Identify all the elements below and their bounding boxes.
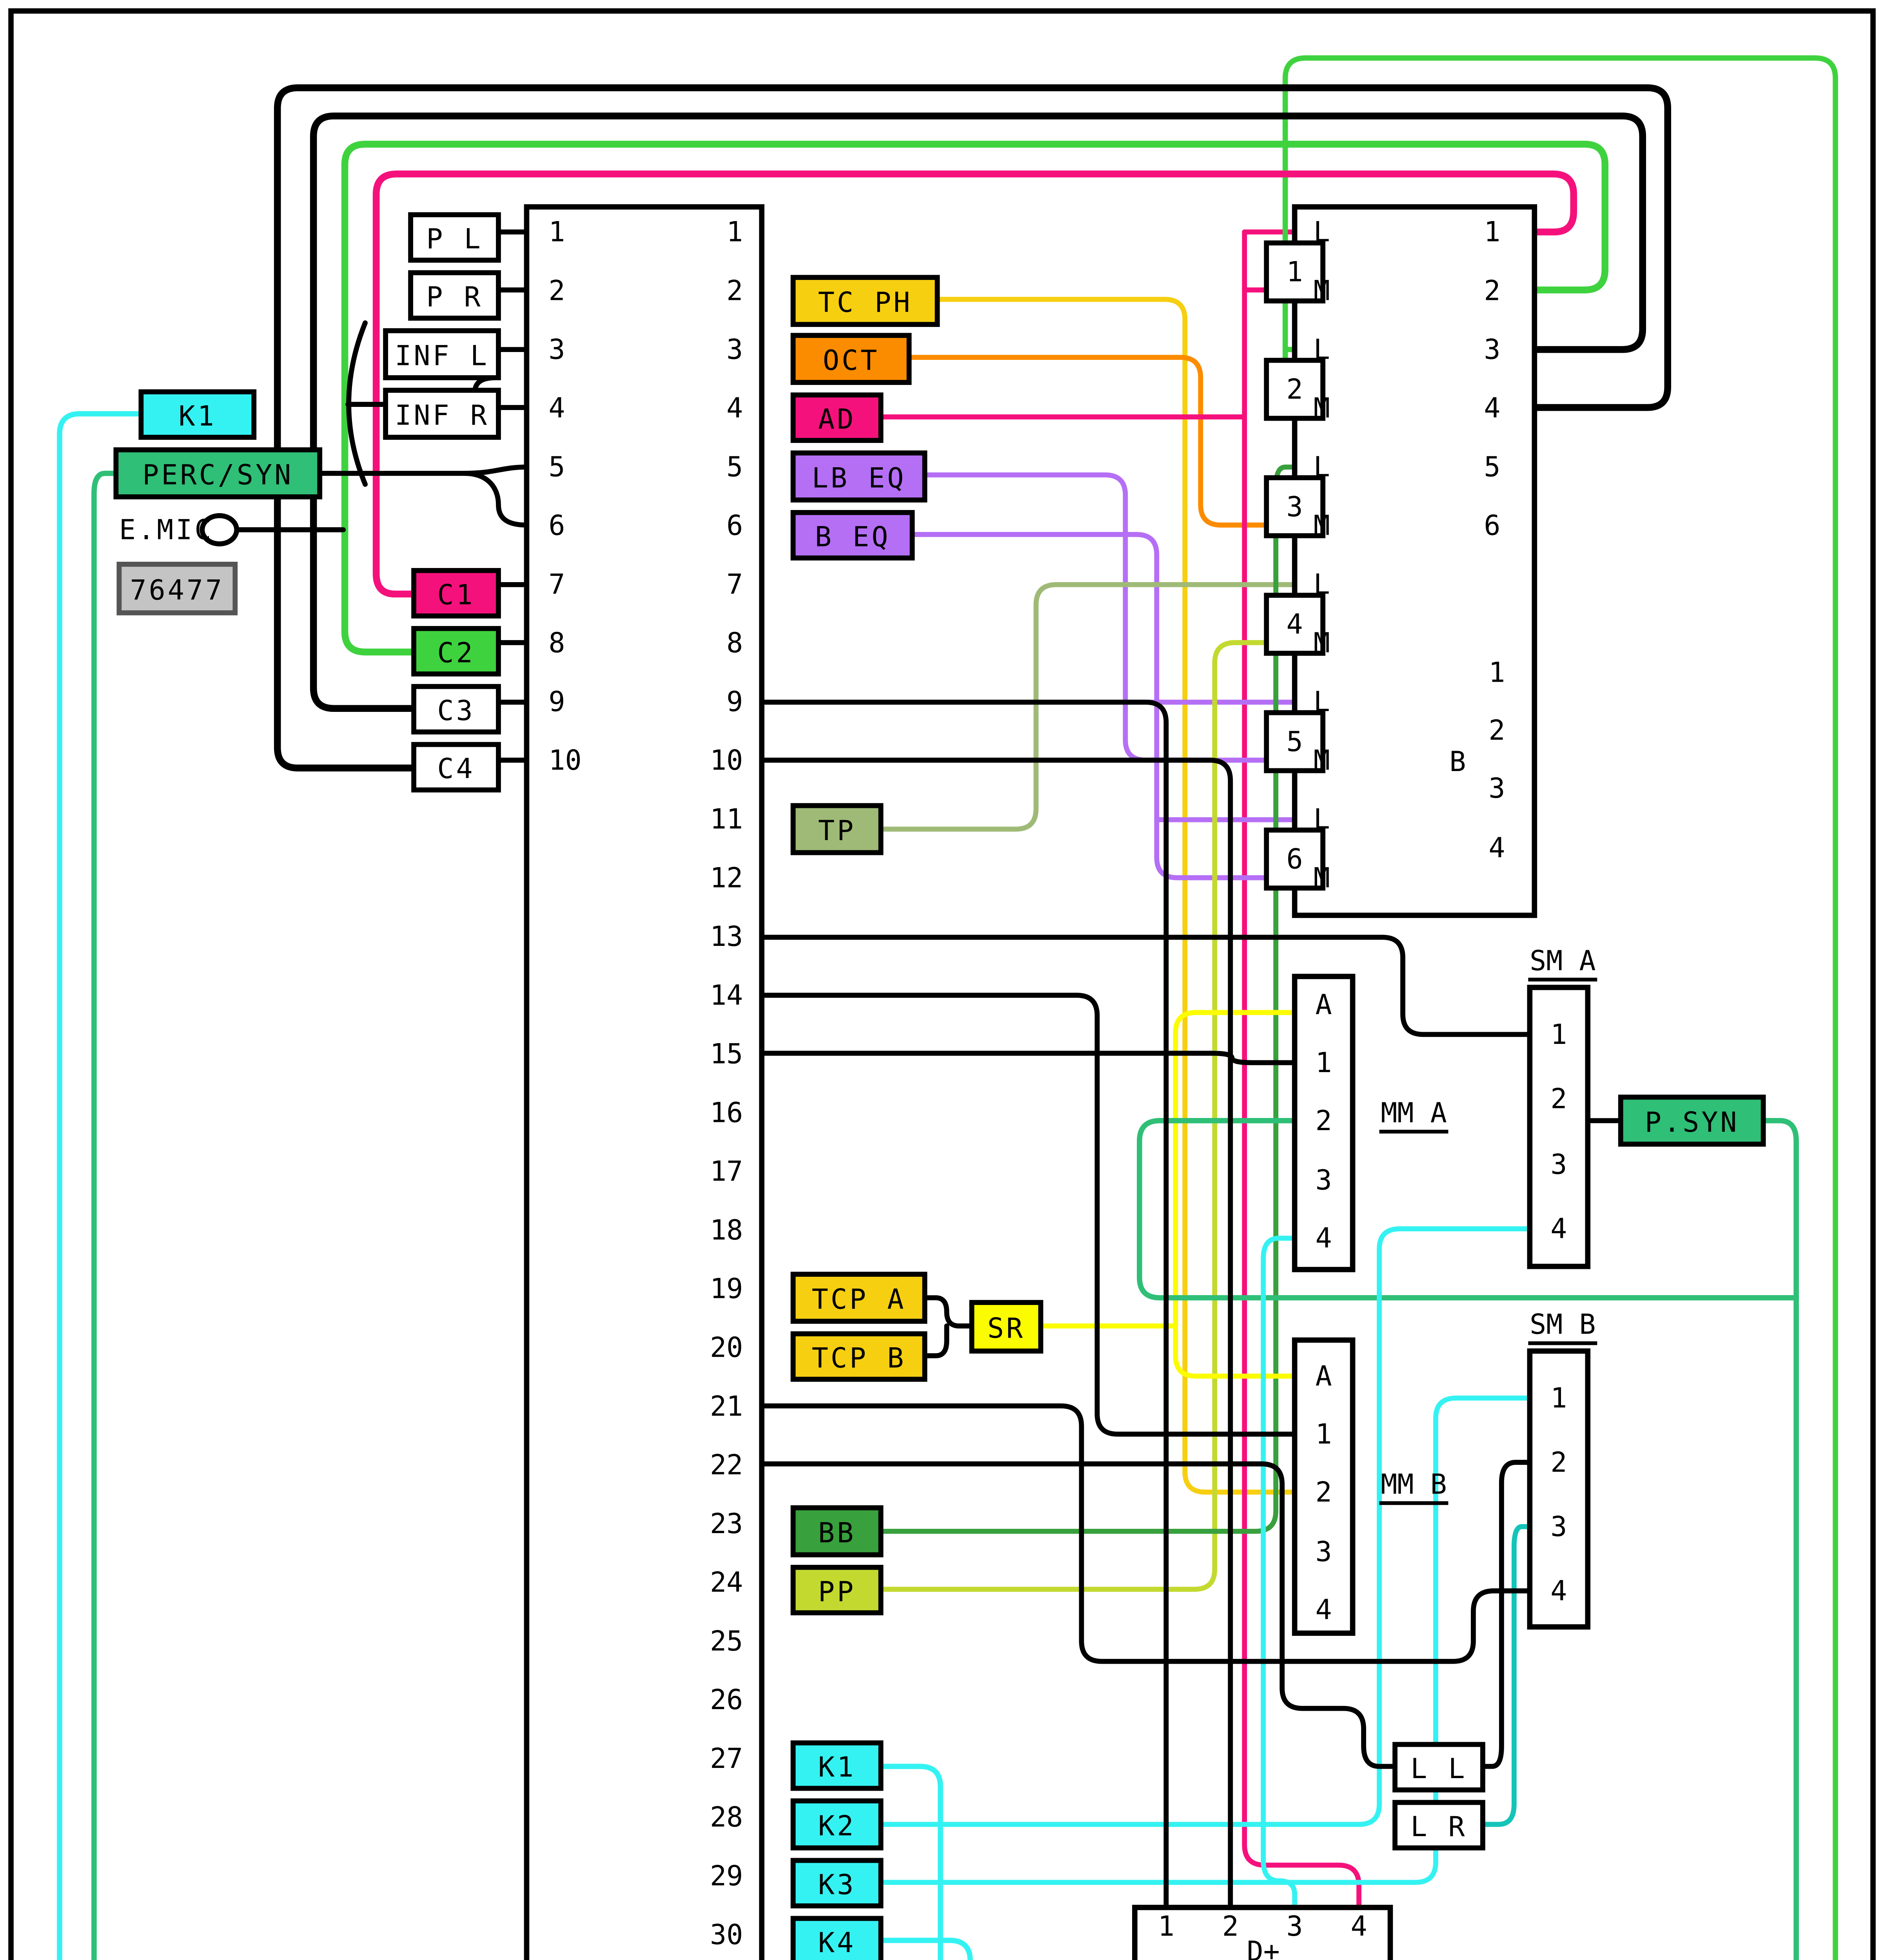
matrix-port-l-label: L <box>1314 333 1330 365</box>
box-b-eq-label: B EQ <box>815 521 891 553</box>
mm-b-port: 2 <box>1316 1476 1332 1508</box>
box-inf-l-label: INF L <box>395 340 489 372</box>
box-k1-top-label: K1 <box>179 400 216 432</box>
mm-a-port: 3 <box>1316 1164 1332 1196</box>
box-p-syn-label: P.SYN <box>1645 1106 1739 1138</box>
channel-strip-right-number: 20 <box>710 1332 743 1364</box>
d-plus-port: 4 <box>1350 1910 1367 1942</box>
sm-a-port: 1 <box>1550 1018 1567 1051</box>
channel-strip-right-number: 6 <box>726 510 743 542</box>
d-plus-port: 3 <box>1287 1910 1303 1942</box>
channel-strip-right-number: 28 <box>710 1801 743 1833</box>
box-k3-label: K3 <box>818 1869 856 1901</box>
mm-a-title: MM A <box>1381 1097 1447 1129</box>
matrix-port-m-label: M <box>1314 392 1330 424</box>
box-tc-ph-label: TC PH <box>818 287 913 319</box>
box-c2-label: C2 <box>437 637 475 669</box>
matrix-port-m-label: M <box>1314 627 1330 659</box>
matrix-b-number: 3 <box>1488 772 1505 804</box>
d-plus-port: 2 <box>1222 1910 1239 1942</box>
matrix-output-number: 2 <box>1484 275 1500 307</box>
mm-a-port: 1 <box>1316 1047 1332 1079</box>
matrix-port-m-label: M <box>1314 275 1330 307</box>
box-tcp-a-label: TCP A <box>812 1283 906 1316</box>
d-plus-port: 1 <box>1158 1910 1174 1942</box>
channel-strip-left-number: 7 <box>548 568 565 600</box>
box-tp-label: TP <box>818 815 856 847</box>
channel-strip-right-number: 18 <box>710 1214 743 1246</box>
box-c3-label: C3 <box>437 695 475 727</box>
matrix-port-m-label: M <box>1314 862 1330 894</box>
channel-strip-right-number: 26 <box>710 1684 743 1716</box>
matrix-port-l-label: L <box>1314 686 1330 718</box>
channel-strip-right-number: 19 <box>710 1273 743 1305</box>
channel-strip-right-number: 8 <box>726 627 743 659</box>
matrix-box <box>1295 207 1535 915</box>
channel-strip-right-number: 9 <box>726 686 743 718</box>
channel-strip-left-number: 4 <box>548 392 565 424</box>
channel-strip-right-number: 12 <box>710 862 743 894</box>
matrix-port-l-label: L <box>1314 568 1330 600</box>
e-mic-label: E.MIC <box>119 514 214 546</box>
channel-strip-right-number: 7 <box>726 568 743 600</box>
channel-strip-right-number: 10 <box>710 744 743 777</box>
box-k1-label: K1 <box>818 1751 856 1783</box>
matrix-b-number: 2 <box>1488 714 1505 746</box>
matrix-pair-number: 1 <box>1287 256 1303 288</box>
channel-strip-right-number: 23 <box>710 1508 743 1540</box>
box-ad-label: AD <box>818 403 856 436</box>
sm-a-port: 4 <box>1550 1213 1567 1245</box>
mm-b-port: 4 <box>1316 1593 1332 1626</box>
matrix-pair-number: 3 <box>1287 491 1303 523</box>
mm-b-port: 1 <box>1316 1418 1332 1450</box>
box-p-r-label: P R <box>426 281 483 313</box>
matrix-b-number: 4 <box>1488 832 1505 864</box>
channel-strip-left-number: 5 <box>548 451 565 483</box>
box-lb-eq-label: LB EQ <box>812 462 906 494</box>
matrix-port-m-label: M <box>1314 744 1330 777</box>
box-c1-label: C1 <box>437 579 475 611</box>
mm-a-port: 4 <box>1316 1222 1332 1254</box>
box-pp-label: PP <box>818 1575 856 1608</box>
matrix-output-number: 4 <box>1484 392 1500 424</box>
matrix-pair-number: 4 <box>1287 608 1303 640</box>
matrix-output-number: 3 <box>1484 333 1500 365</box>
channel-strip-right-number: 1 <box>726 216 743 248</box>
channel-strip-left-number: 3 <box>548 333 565 365</box>
channel-strip-right-number: 17 <box>710 1155 743 1187</box>
channel-strip-right-number: 25 <box>710 1625 743 1657</box>
page-background <box>0 0 1884 1960</box>
channel-strip-right-number: 15 <box>710 1038 743 1070</box>
sm-b-port: 4 <box>1550 1575 1567 1607</box>
matrix-pair-number: 5 <box>1287 726 1303 758</box>
mm-b-title: MM B <box>1381 1468 1447 1500</box>
sm-b-port: 2 <box>1550 1446 1567 1478</box>
channel-strip-right-number: 29 <box>710 1860 743 1892</box>
matrix-pair-number: 6 <box>1287 843 1303 875</box>
channel-strip-left-number: 10 <box>548 744 581 777</box>
d-plus-label: D+ <box>1247 1935 1280 1960</box>
sm-b-title: SM B <box>1530 1308 1596 1341</box>
matrix-port-l-label: L <box>1314 216 1330 248</box>
sm-a-port: 3 <box>1550 1149 1567 1181</box>
channel-strip-right-number: 3 <box>726 333 743 365</box>
mm-a-port: A <box>1316 989 1332 1021</box>
box-l-l-label: L L <box>1410 1753 1467 1785</box>
matrix-port-l-label: L <box>1314 451 1330 483</box>
box-k4-label: K4 <box>818 1927 856 1959</box>
matrix-port-m-label: M <box>1314 510 1330 542</box>
box-perc-syn-label: PERC/SYN <box>142 459 293 491</box>
channel-strip-right-number: 4 <box>726 392 743 424</box>
channel-strip-left-number: 6 <box>548 510 565 542</box>
box-k2-label: K2 <box>818 1810 856 1842</box>
channel-strip-left-number: 9 <box>548 686 565 718</box>
channel-strip-left-number: 1 <box>548 216 565 248</box>
sm-b-port: 3 <box>1550 1510 1567 1543</box>
matrix-b-number: 1 <box>1488 656 1505 688</box>
sm-a-title: SM A <box>1530 945 1596 977</box>
wiring-diagram-page: 1234567891012345678910111213141516171819… <box>0 0 1884 1960</box>
channel-strip-right-number: 11 <box>710 803 743 835</box>
channel-strip-left-number: 8 <box>548 627 565 659</box>
sm-a-port: 2 <box>1550 1083 1567 1115</box>
box-bb-label: BB <box>818 1517 856 1549</box>
matrix-pair-number: 2 <box>1287 373 1303 405</box>
box-chip-label: 76477 <box>130 574 225 606</box>
box-sr-label: SR <box>987 1312 1025 1345</box>
channel-strip-right-number: 13 <box>710 920 743 953</box>
wiring-diagram: 1234567891012345678910111213141516171819… <box>0 0 1884 1960</box>
matrix-output-number: 6 <box>1484 510 1500 542</box>
channel-strip-right-number: 27 <box>710 1742 743 1775</box>
sm-b-port: 1 <box>1550 1382 1567 1414</box>
box-l-r-label: L R <box>1410 1811 1467 1843</box>
box-p-l-label: P L <box>426 223 483 255</box>
channel-strip-right-number: 16 <box>710 1096 743 1129</box>
matrix-port-l-label: L <box>1314 803 1330 835</box>
matrix-output-number: 1 <box>1484 216 1500 248</box>
box-oct-label: OCT <box>823 345 879 377</box>
matrix-output-number: 5 <box>1484 451 1500 483</box>
channel-strip-right-number: 24 <box>710 1566 743 1599</box>
channel-strip-right-number: 22 <box>710 1449 743 1481</box>
mm-b-port: 3 <box>1316 1535 1332 1568</box>
mm-a-port: 2 <box>1316 1105 1332 1137</box>
channel-strip-left-number: 2 <box>548 275 565 307</box>
channel-strip-right-number: 21 <box>710 1390 743 1422</box>
channel-strip-right-number: 14 <box>710 979 743 1011</box>
box-tcp-b-label: TCP B <box>812 1342 906 1374</box>
box-inf-r-label: INF R <box>395 399 489 432</box>
matrix-b-label: B <box>1449 746 1466 778</box>
box-c4-label: C4 <box>437 753 475 785</box>
channel-strip-right-number: 5 <box>726 451 743 483</box>
channel-strip-right-number: 2 <box>726 275 743 307</box>
mm-b-port: A <box>1316 1360 1332 1392</box>
channel-strip-right-number: 30 <box>710 1918 743 1951</box>
